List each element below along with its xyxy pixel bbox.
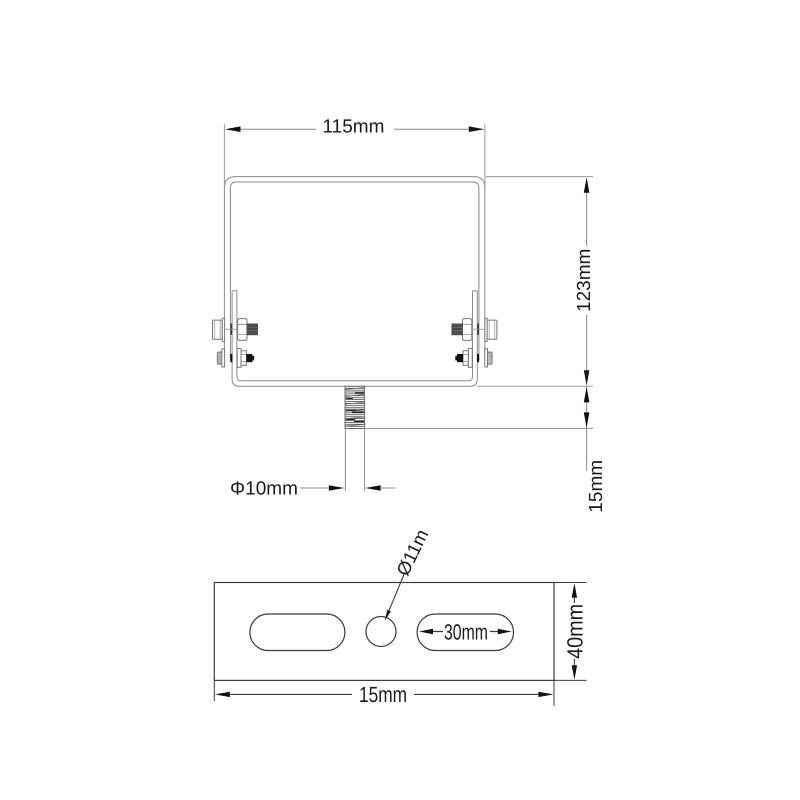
svg-text:115mm: 115mm	[323, 116, 385, 137]
svg-text:30mm: 30mm	[444, 619, 488, 644]
svg-text:15mm: 15mm	[359, 682, 407, 707]
svg-text:15mm: 15mm	[586, 460, 607, 513]
svg-text:40mm: 40mm	[563, 604, 588, 659]
svg-text:Φ10mm: Φ10mm	[230, 478, 298, 499]
svg-text:123mm: 123mm	[574, 249, 595, 312]
